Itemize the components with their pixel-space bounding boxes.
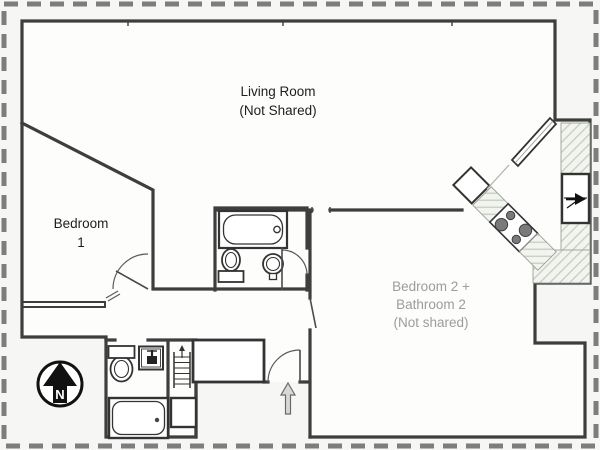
faucet-icon — [147, 356, 157, 364]
hall-closet — [193, 340, 264, 382]
bedroom2-label: Bedroom 2 + Bathroom 2 (Not shared) — [392, 278, 470, 332]
north-compass: N — [38, 362, 82, 406]
bathtub — [109, 398, 168, 438]
tub-drain-icon — [155, 418, 159, 422]
sink — [139, 347, 163, 370]
bedroom1-label: Bedroom 1 — [54, 214, 109, 252]
living-room-label: Living Room (Not Shared) — [239, 82, 316, 120]
compass-letter: N — [55, 387, 64, 402]
toilet — [109, 346, 135, 382]
shaft-closet — [171, 398, 196, 427]
refrigerator — [562, 174, 589, 223]
entry-arrow-icon — [281, 383, 295, 414]
floor-plan: N Living Room (Not Shared) Bedroom 1 Bed… — [0, 0, 600, 450]
